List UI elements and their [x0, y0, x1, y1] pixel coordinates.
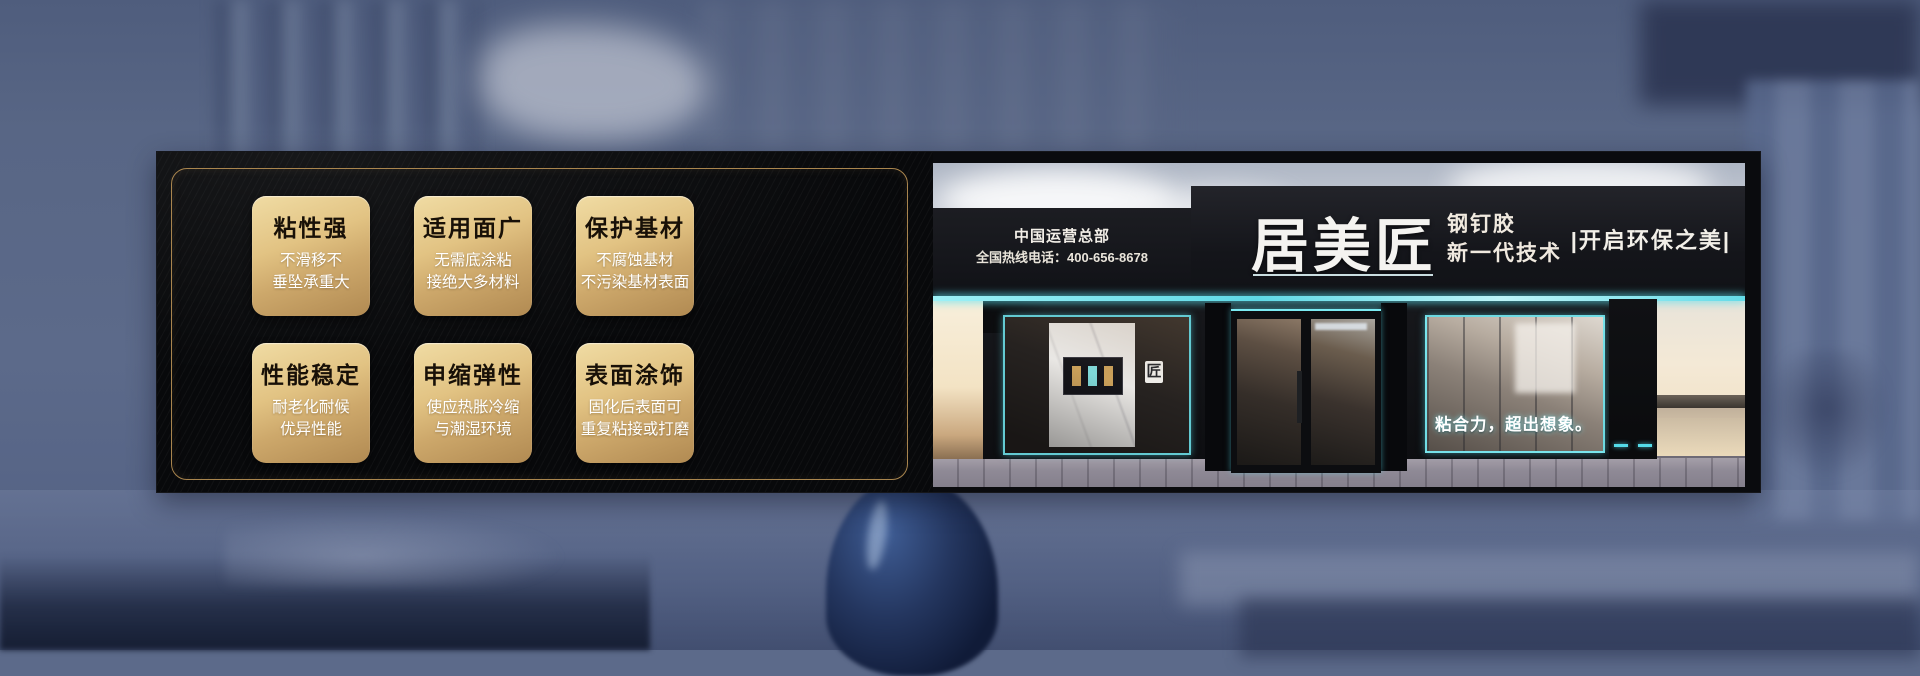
side-wall-beam: [1657, 395, 1745, 408]
feature-title: 保护基材: [576, 209, 694, 243]
door-glass-pane: [1311, 319, 1375, 465]
sunlit-wall-strip: [933, 299, 983, 459]
side-ground-shadow: [1657, 408, 1745, 460]
background-bottom-right-dark: [1240, 598, 1920, 658]
product-tech: 新一代技术: [1447, 237, 1562, 267]
feature-desc: 无需底涂粘 接绝大多材料: [414, 250, 532, 294]
brand-underline: [1253, 274, 1433, 276]
brand-name: 居美匠: [1251, 199, 1437, 283]
product-name: 钢钉胶: [1447, 208, 1516, 238]
feature-card: 性能稳定 耐老化耐候 优异性能: [252, 343, 370, 463]
door-column-right: [1381, 303, 1407, 471]
feature-panel: 粘性强 不滑移不 垂坠承重大 适用面广 无需底涂粘 接绝大多材料 保护基材 不腐…: [157, 152, 933, 492]
eco-slogan: |开启环保之美|: [1571, 223, 1731, 255]
display-window-left: 匠: [1003, 315, 1191, 455]
feature-card: 适用面广 无需底涂粘 接绝大多材料: [414, 196, 532, 316]
interior-bright-patch: [1515, 323, 1575, 393]
promo-banner: 粘性强 不滑移不 垂坠承重大 适用面广 无需底涂粘 接绝大多材料 保护基材 不腐…: [157, 152, 1760, 492]
interior-light-reflection: [1315, 323, 1367, 330]
neon-dash: [1638, 444, 1652, 447]
feature-card: 申缩弹性 使应热胀冷缩 与潮湿环境: [414, 343, 532, 463]
feature-card: 保护基材 不腐蚀基材 不污染基材表面: [576, 196, 694, 316]
feature-title: 申缩弹性: [414, 356, 532, 390]
feature-card: 粘性强 不滑移不 垂坠承重大: [252, 196, 370, 316]
storefront-photo: 中国运营总部 全国热线电话：400-656-8678 居美匠 钢钉胶 新一代技术…: [933, 163, 1745, 487]
adhesion-slogan: 粘合力，超出想象。: [1435, 411, 1593, 435]
feature-title: 适用面广: [414, 209, 532, 243]
feature-desc: 固化后表面可 重复粘接或打磨: [576, 397, 694, 441]
background-plant-silhouette: [1762, 350, 1892, 480]
feature-desc: 不腐蚀基材 不污染基材表面: [576, 250, 694, 294]
hq-label: 中国运营总部: [933, 225, 1191, 246]
door-glass-pane: [1237, 319, 1301, 465]
feature-title: 粘性强: [252, 209, 370, 243]
glass-reflection: [1005, 317, 1189, 453]
background-decor-sprigs: [225, 512, 565, 587]
feature-desc: 耐老化耐候 优异性能: [252, 397, 370, 441]
display-window-right: 粘合力，超出想象。: [1425, 315, 1605, 453]
feature-card: 表面涂饰 固化后表面可 重复粘接或打磨: [576, 343, 694, 463]
corner-pillar: [1609, 299, 1657, 459]
hotline-number: 全国热线电话：400-656-8678: [933, 247, 1191, 266]
feature-title: 表面涂饰: [576, 356, 694, 390]
feature-title: 性能稳定: [252, 356, 370, 390]
background-gray-columns: [700, 0, 1180, 150]
glass-entrance-door: [1231, 309, 1381, 473]
door-column-left: [1205, 303, 1231, 471]
neon-dash: [1614, 444, 1628, 447]
feature-desc: 使应热胀冷缩 与潮湿环境: [414, 397, 532, 441]
feature-desc: 不滑移不 垂坠承重大: [252, 250, 370, 294]
door-handle: [1297, 371, 1302, 423]
